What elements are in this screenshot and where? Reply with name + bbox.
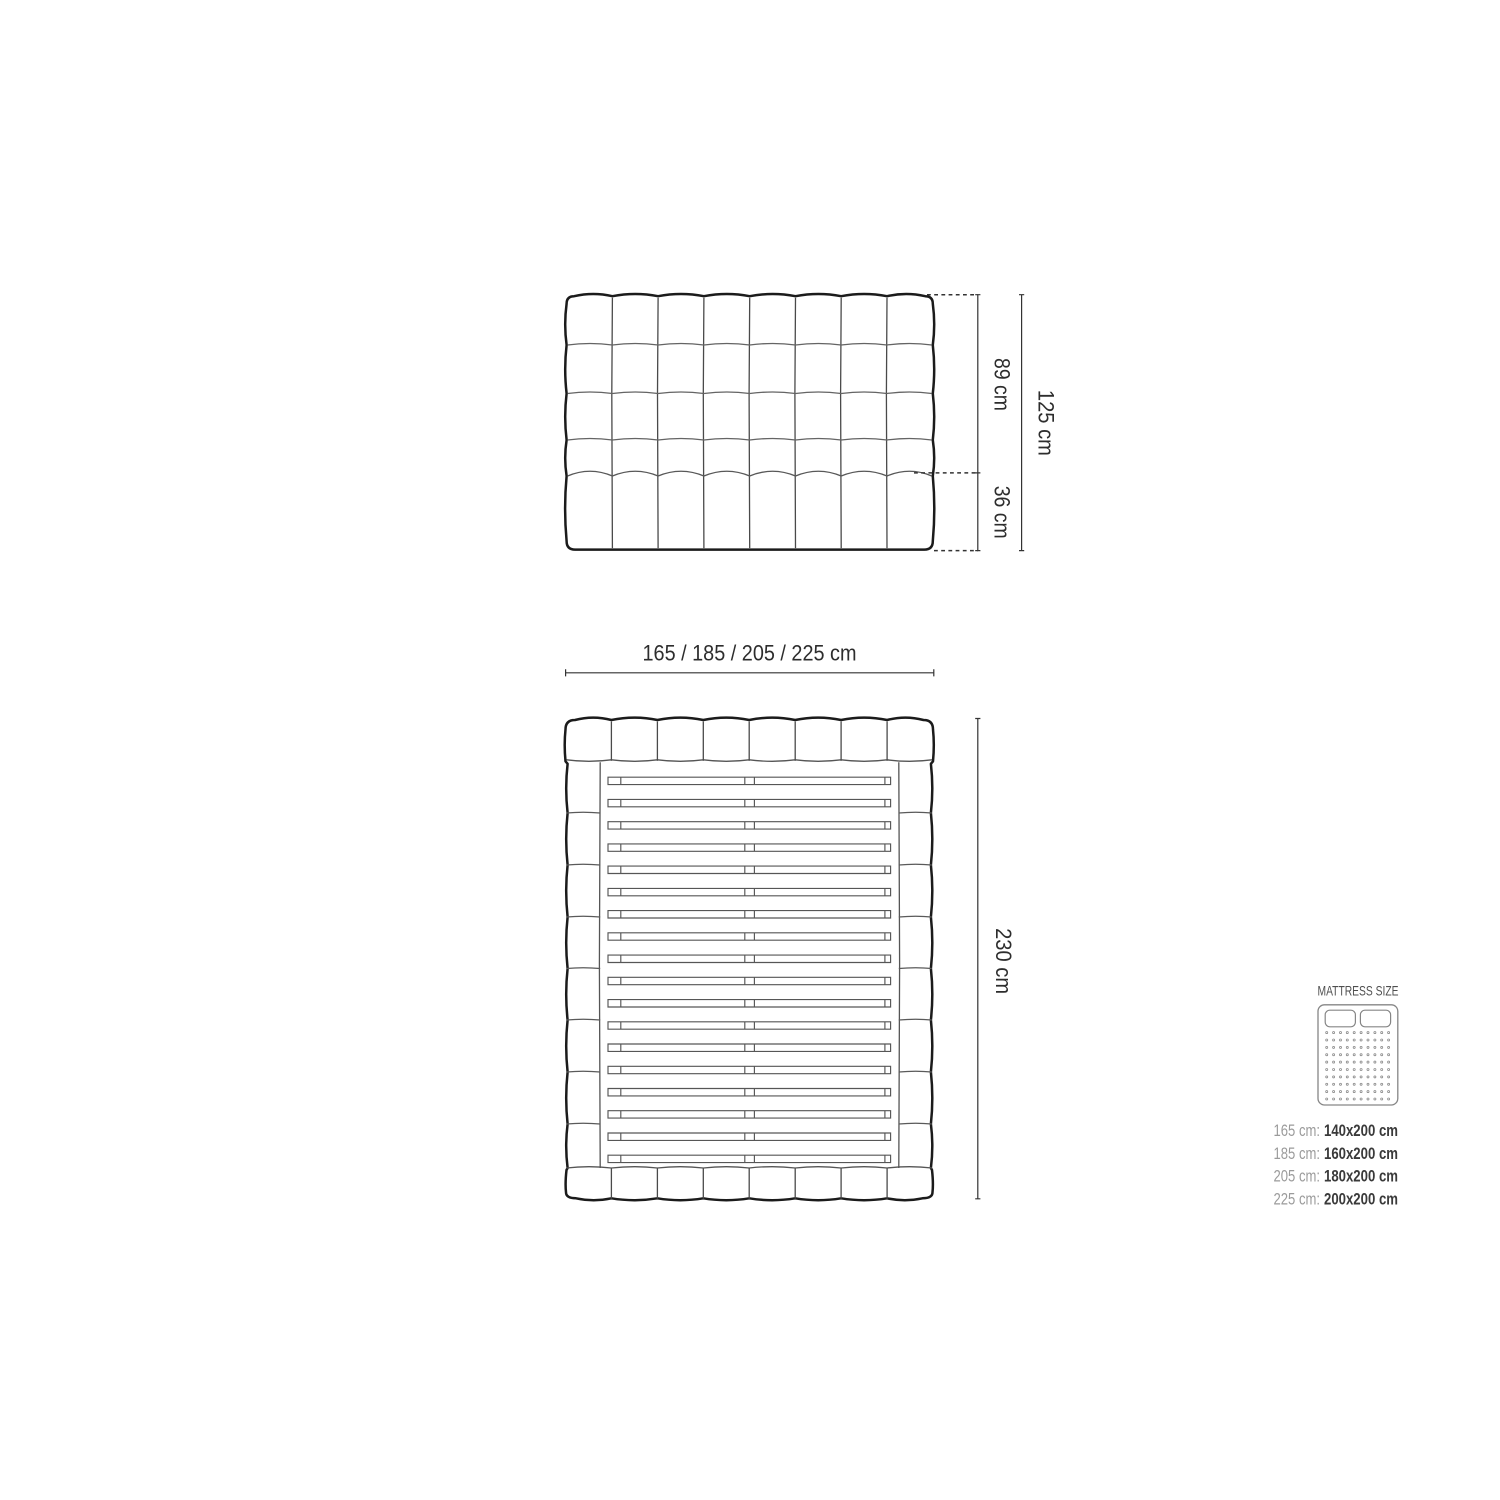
svg-text:230 cm: 230 cm — [991, 928, 1016, 994]
svg-text:165 cm:: 165 cm: — [1274, 1122, 1321, 1140]
svg-text:125 cm: 125 cm — [1034, 390, 1059, 456]
svg-text:225 cm:: 225 cm: — [1274, 1190, 1321, 1208]
svg-text:180x200 cm: 180x200 cm — [1324, 1168, 1398, 1186]
svg-text:MATTRESS SIZE: MATTRESS SIZE — [1318, 984, 1399, 999]
svg-text:185 cm:: 185 cm: — [1274, 1145, 1321, 1163]
svg-text:165 / 185 / 205 / 225 cm: 165 / 185 / 205 / 225 cm — [643, 641, 857, 666]
svg-text:36 cm: 36 cm — [990, 486, 1015, 539]
svg-text:160x200 cm: 160x200 cm — [1324, 1145, 1398, 1163]
svg-text:140x200 cm: 140x200 cm — [1324, 1122, 1398, 1140]
svg-text:200x200 cm: 200x200 cm — [1324, 1190, 1398, 1208]
svg-text:89 cm: 89 cm — [990, 358, 1015, 411]
svg-text:205 cm:: 205 cm: — [1274, 1168, 1321, 1186]
